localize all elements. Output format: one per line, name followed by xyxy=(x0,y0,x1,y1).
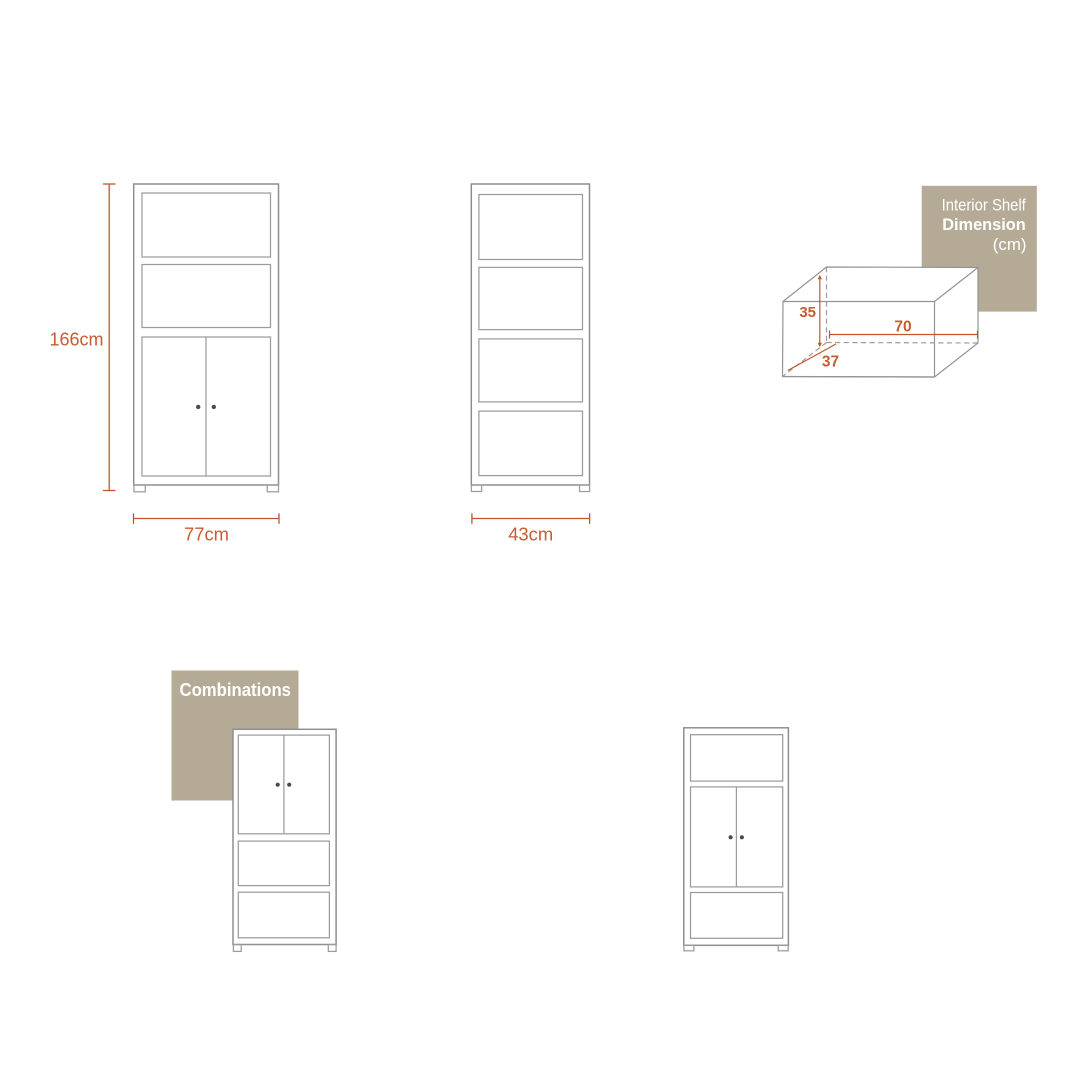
svg-text:37: 37 xyxy=(822,354,839,371)
svg-text:70: 70 xyxy=(894,319,911,336)
svg-text:Combinations: Combinations xyxy=(180,679,292,700)
svg-text:166cm: 166cm xyxy=(50,329,104,350)
svg-text:Interior Shelf: Interior Shelf xyxy=(942,196,1026,215)
svg-text:77cm: 77cm xyxy=(184,524,229,545)
svg-text:35: 35 xyxy=(799,304,816,321)
svg-text:43cm: 43cm xyxy=(508,524,553,545)
svg-text:(cm): (cm) xyxy=(993,235,1027,254)
svg-text:Dimension: Dimension xyxy=(942,215,1026,234)
